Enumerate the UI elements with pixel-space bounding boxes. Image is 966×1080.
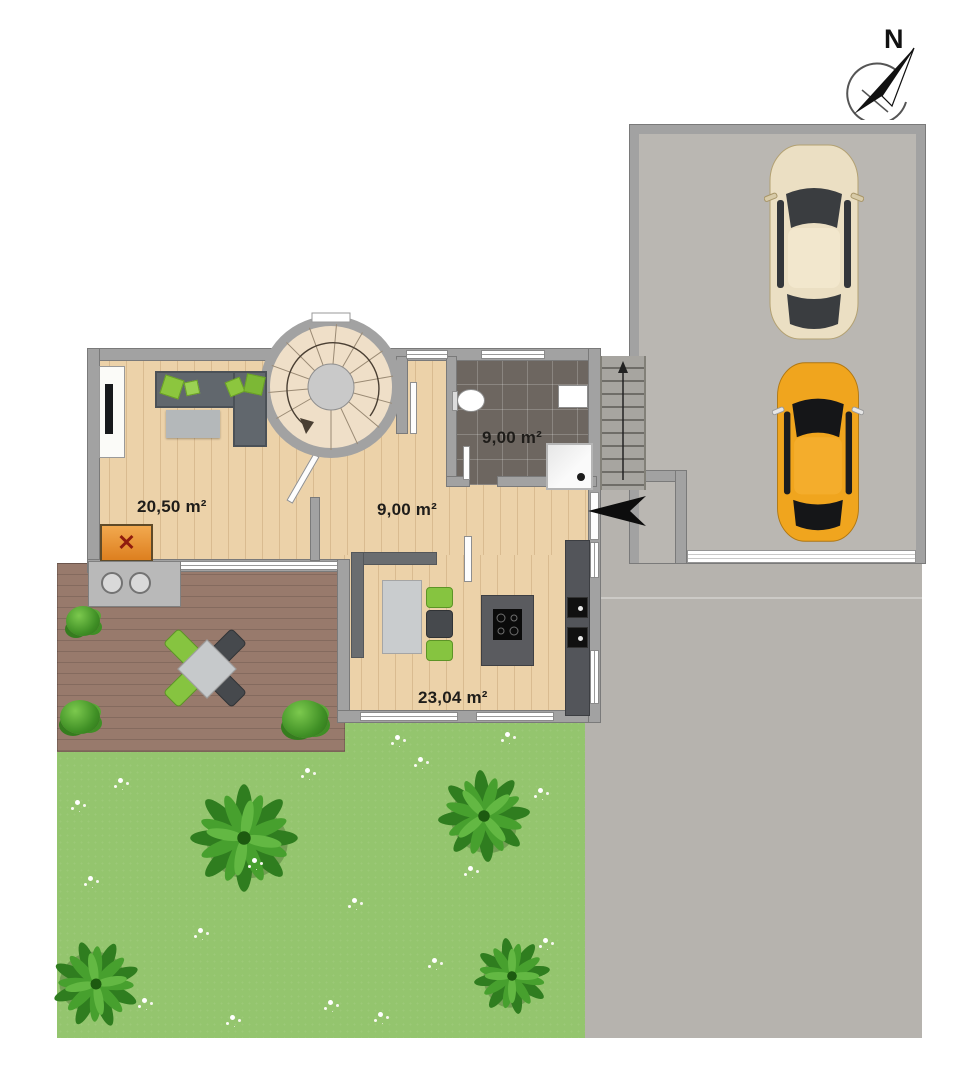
flower-icon <box>305 768 310 773</box>
door-under-stairs <box>410 382 417 434</box>
window-kitchen-right-2 <box>590 650 599 704</box>
tv-icon <box>105 384 113 434</box>
flower-icon <box>230 1015 235 1020</box>
beige-car-icon <box>764 141 864 343</box>
flower-icon <box>505 732 510 737</box>
living-room-area-label: 20,50 m² <box>137 497 207 517</box>
wall-bath-left <box>447 357 456 484</box>
compass-icon <box>842 44 938 120</box>
bush-icon <box>66 606 100 636</box>
flower-icon <box>252 858 257 863</box>
flower-icon <box>432 958 437 963</box>
flower-icon <box>118 778 123 783</box>
flower-icon <box>88 876 93 881</box>
flower-icon <box>328 1000 333 1005</box>
pillow-icon <box>184 380 201 397</box>
door-hall-kitchen <box>464 536 472 582</box>
dining-chair-icon <box>426 587 453 608</box>
cooktop-small-icon <box>567 627 588 648</box>
stairs-up-arrow-icon <box>617 360 629 486</box>
bush-icon <box>282 700 328 738</box>
pillow-icon <box>243 373 266 396</box>
window-bath-1 <box>406 350 448 359</box>
flower-icon <box>395 735 400 740</box>
window-kitchen-right-1 <box>590 542 599 578</box>
floor-plan: ✕ <box>0 0 966 1080</box>
window-bath-2 <box>481 350 545 359</box>
parking-wall-step-v <box>676 471 686 563</box>
window-kitchen-1 <box>360 712 458 721</box>
palm-tree-icon <box>466 930 559 1023</box>
wall-left <box>88 349 99 572</box>
window-kitchen-2 <box>476 712 554 721</box>
dining-chair-icon <box>426 640 453 661</box>
flower-icon <box>198 928 203 933</box>
flower-icon <box>418 757 423 762</box>
door-bathroom <box>463 446 470 480</box>
wall-hall-stub <box>311 498 319 560</box>
corner-bench-icon <box>351 552 364 658</box>
shower-drain-icon <box>577 473 585 481</box>
palm-tree-icon <box>188 782 300 894</box>
kitchen-sink-icon <box>567 597 588 618</box>
paving-joint-line <box>585 597 922 599</box>
driveway-gate <box>687 550 916 563</box>
flower-icon <box>538 788 543 793</box>
flower-icon <box>142 998 147 1003</box>
cooktop-icon <box>493 609 522 640</box>
bathroom-area-label: 9,00 m² <box>482 428 542 448</box>
fireplace-cross-mark: ✕ <box>117 532 135 554</box>
flower-icon <box>352 898 357 903</box>
hallway-area-label: 9,00 m² <box>377 500 437 520</box>
wall-kitchen-left <box>338 560 349 722</box>
chimney-flue-icon <box>129 572 151 594</box>
flower-icon <box>543 938 548 943</box>
dining-table-icon <box>382 580 422 654</box>
bathroom-sink-icon <box>558 385 588 408</box>
coffee-table-icon <box>166 410 220 438</box>
shower-icon <box>546 443 593 490</box>
kitchen-area-label: 23,04 m² <box>418 688 488 708</box>
toilet-icon <box>457 389 485 412</box>
bush-icon <box>60 700 100 734</box>
flower-icon <box>468 866 473 871</box>
flower-icon <box>75 800 80 805</box>
fireplace-icon: ✕ <box>100 524 153 562</box>
chimney-flue-icon <box>101 572 123 594</box>
orange-car-icon <box>772 354 864 550</box>
flower-icon <box>378 1012 383 1017</box>
dining-chair-icon <box>426 610 453 638</box>
entrance-arrow-icon <box>588 496 646 526</box>
spiral-staircase-icon <box>256 312 406 462</box>
